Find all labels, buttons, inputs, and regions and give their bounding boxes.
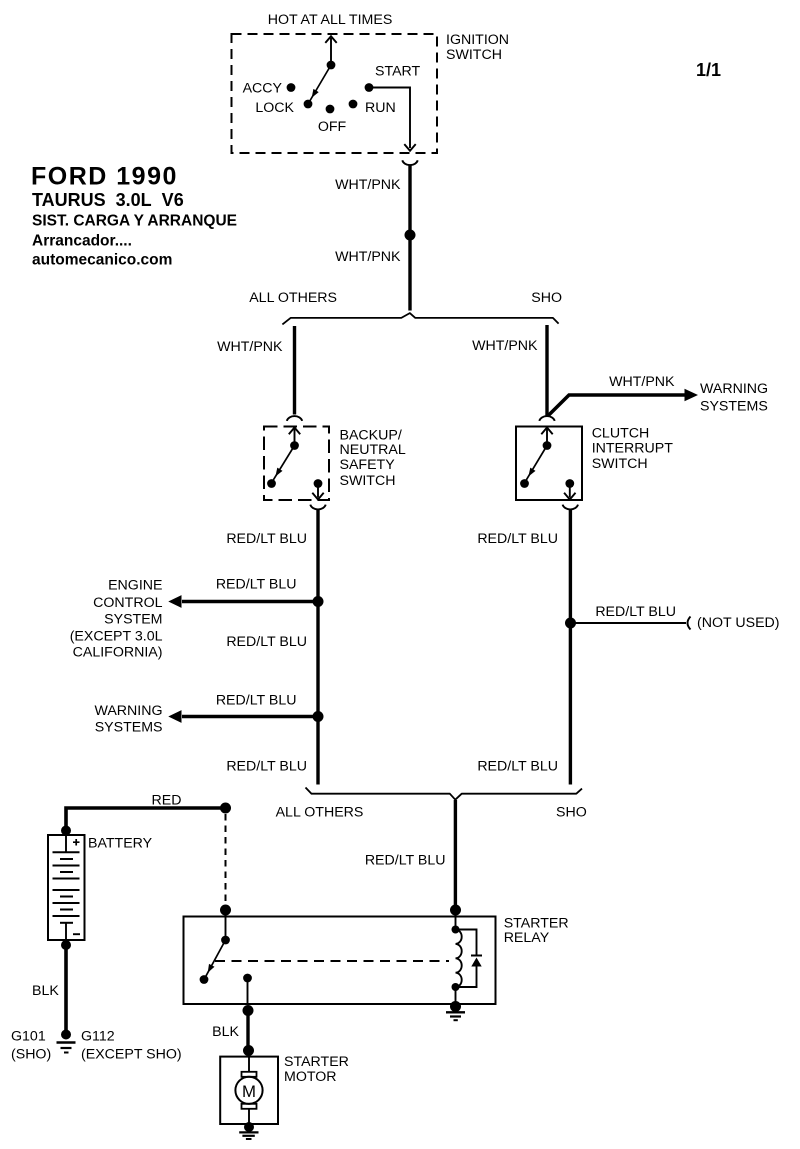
svg-text:RED/LT BLU: RED/LT BLU (226, 634, 307, 650)
svg-text:CONTROL: CONTROL (93, 595, 162, 611)
svg-text:SYSTEM: SYSTEM (104, 611, 162, 627)
svg-text:BLK: BLK (32, 983, 59, 999)
svg-text:WARNING: WARNING (94, 703, 162, 719)
svg-text:WHT/PNK: WHT/PNK (335, 177, 401, 193)
svg-text:RED/LT BLU: RED/LT BLU (477, 531, 558, 547)
svg-text:1/1: 1/1 (696, 60, 721, 80)
svg-text:RED/LT BLU: RED/LT BLU (477, 758, 558, 774)
svg-text:RED/LT BLU: RED/LT BLU (595, 604, 676, 620)
svg-text:INTERRUPT: INTERRUPT (592, 441, 674, 457)
svg-text:STARTER: STARTER (504, 915, 569, 931)
svg-text:IGNITION: IGNITION (446, 32, 509, 48)
svg-text:SHO: SHO (556, 805, 587, 821)
svg-text:LOCK: LOCK (255, 100, 294, 116)
svg-text:STARTER: STARTER (284, 1054, 349, 1070)
svg-text:WARNING: WARNING (700, 381, 768, 397)
svg-text:SYSTEMS: SYSTEMS (95, 720, 163, 736)
svg-text:RED/LT BLU: RED/LT BLU (226, 531, 307, 547)
svg-text:ENGINE: ENGINE (108, 578, 162, 594)
svg-text:SWITCH: SWITCH (446, 47, 502, 63)
svg-text:RED/LT BLU: RED/LT BLU (216, 692, 297, 708)
svg-text:(EXCEPT 3.0L: (EXCEPT 3.0L (70, 628, 163, 644)
svg-text:SHO: SHO (531, 290, 562, 306)
svg-text:(EXCEPT SHO): (EXCEPT SHO) (81, 1047, 182, 1063)
svg-text:ALL OTHERS: ALL OTHERS (276, 805, 364, 821)
svg-text:automecanico.com: automecanico.com (32, 252, 172, 269)
svg-text:TAURUS 3.0L V6: TAURUS 3.0L V6 (32, 190, 184, 210)
svg-text:SIST. CARGA Y ARRANQUE: SIST. CARGA Y ARRANQUE (32, 213, 237, 230)
svg-text:WHT/PNK: WHT/PNK (472, 338, 538, 354)
svg-text:CLUTCH: CLUTCH (592, 426, 650, 442)
svg-text:NEUTRAL: NEUTRAL (340, 442, 406, 458)
svg-text:(NOT USED): (NOT USED) (697, 615, 780, 631)
svg-text:M: M (242, 1082, 256, 1101)
svg-text:RED: RED (152, 792, 182, 808)
svg-text:SWITCH: SWITCH (340, 473, 396, 489)
svg-text:RED/LT BLU: RED/LT BLU (226, 758, 307, 774)
svg-text:ALL OTHERS: ALL OTHERS (249, 290, 337, 306)
svg-text:CALIFORNIA): CALIFORNIA) (73, 645, 163, 661)
svg-text:Arrancador....: Arrancador.... (32, 233, 132, 250)
svg-text:FORD 1990: FORD 1990 (31, 163, 178, 191)
svg-text:RED/LT BLU: RED/LT BLU (216, 576, 297, 592)
svg-text:OFF: OFF (318, 119, 347, 135)
svg-text:START: START (375, 64, 421, 80)
svg-text:MOTOR: MOTOR (284, 1069, 337, 1085)
svg-text:(SHO): (SHO) (11, 1047, 51, 1063)
svg-text:G101: G101 (11, 1029, 46, 1045)
svg-text:RELAY: RELAY (504, 930, 550, 946)
svg-text:SYSTEMS: SYSTEMS (700, 399, 768, 415)
svg-text:WHT/PNK: WHT/PNK (609, 374, 675, 390)
svg-text:WHT/PNK: WHT/PNK (217, 339, 283, 355)
svg-text:ACCY: ACCY (243, 80, 283, 96)
svg-text:G112: G112 (81, 1029, 115, 1045)
svg-text:HOT AT ALL TIMES: HOT AT ALL TIMES (268, 12, 393, 28)
svg-text:SAFETY: SAFETY (340, 457, 396, 473)
svg-text:RUN: RUN (365, 100, 396, 116)
svg-text:BATTERY: BATTERY (88, 836, 153, 852)
svg-text:SWITCH: SWITCH (592, 456, 648, 472)
svg-text:RED/LT BLU: RED/LT BLU (365, 853, 446, 869)
svg-text:BLK: BLK (212, 1024, 239, 1040)
svg-text:WHT/PNK: WHT/PNK (335, 249, 401, 265)
